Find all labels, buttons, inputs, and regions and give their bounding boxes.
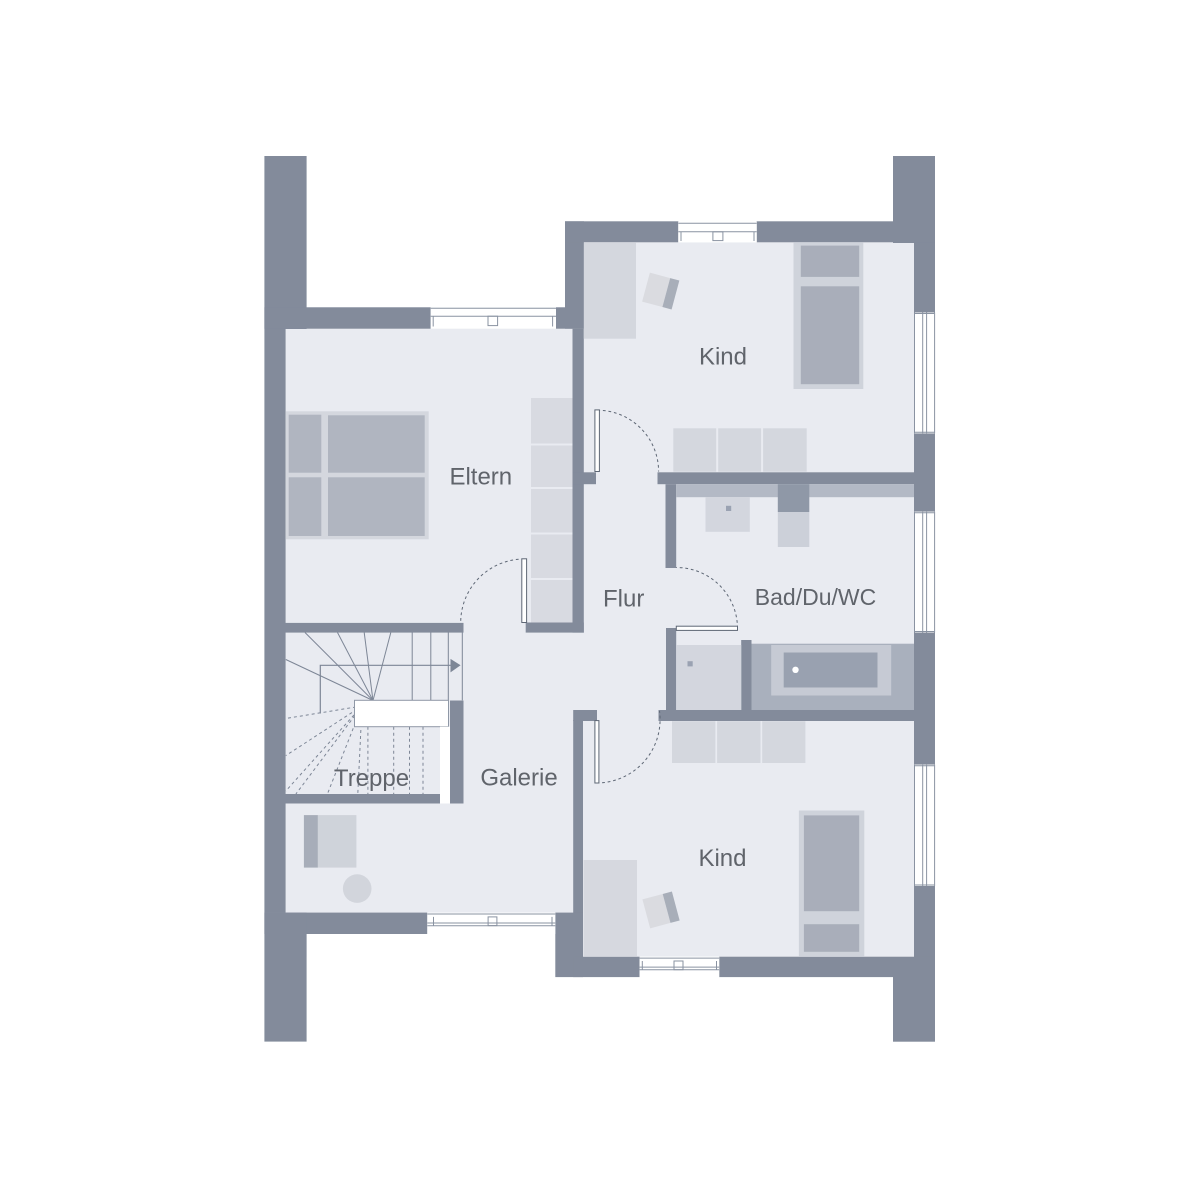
svg-text:Kind: Kind [699, 344, 747, 371]
svg-text:Galerie: Galerie [480, 765, 557, 792]
svg-text:Flur: Flur [603, 586, 644, 613]
svg-text:Kind: Kind [698, 845, 746, 872]
svg-text:Treppe: Treppe [334, 765, 409, 792]
svg-text:Eltern: Eltern [449, 464, 512, 491]
svg-text:Bad/Du/WC: Bad/Du/WC [755, 584, 876, 610]
